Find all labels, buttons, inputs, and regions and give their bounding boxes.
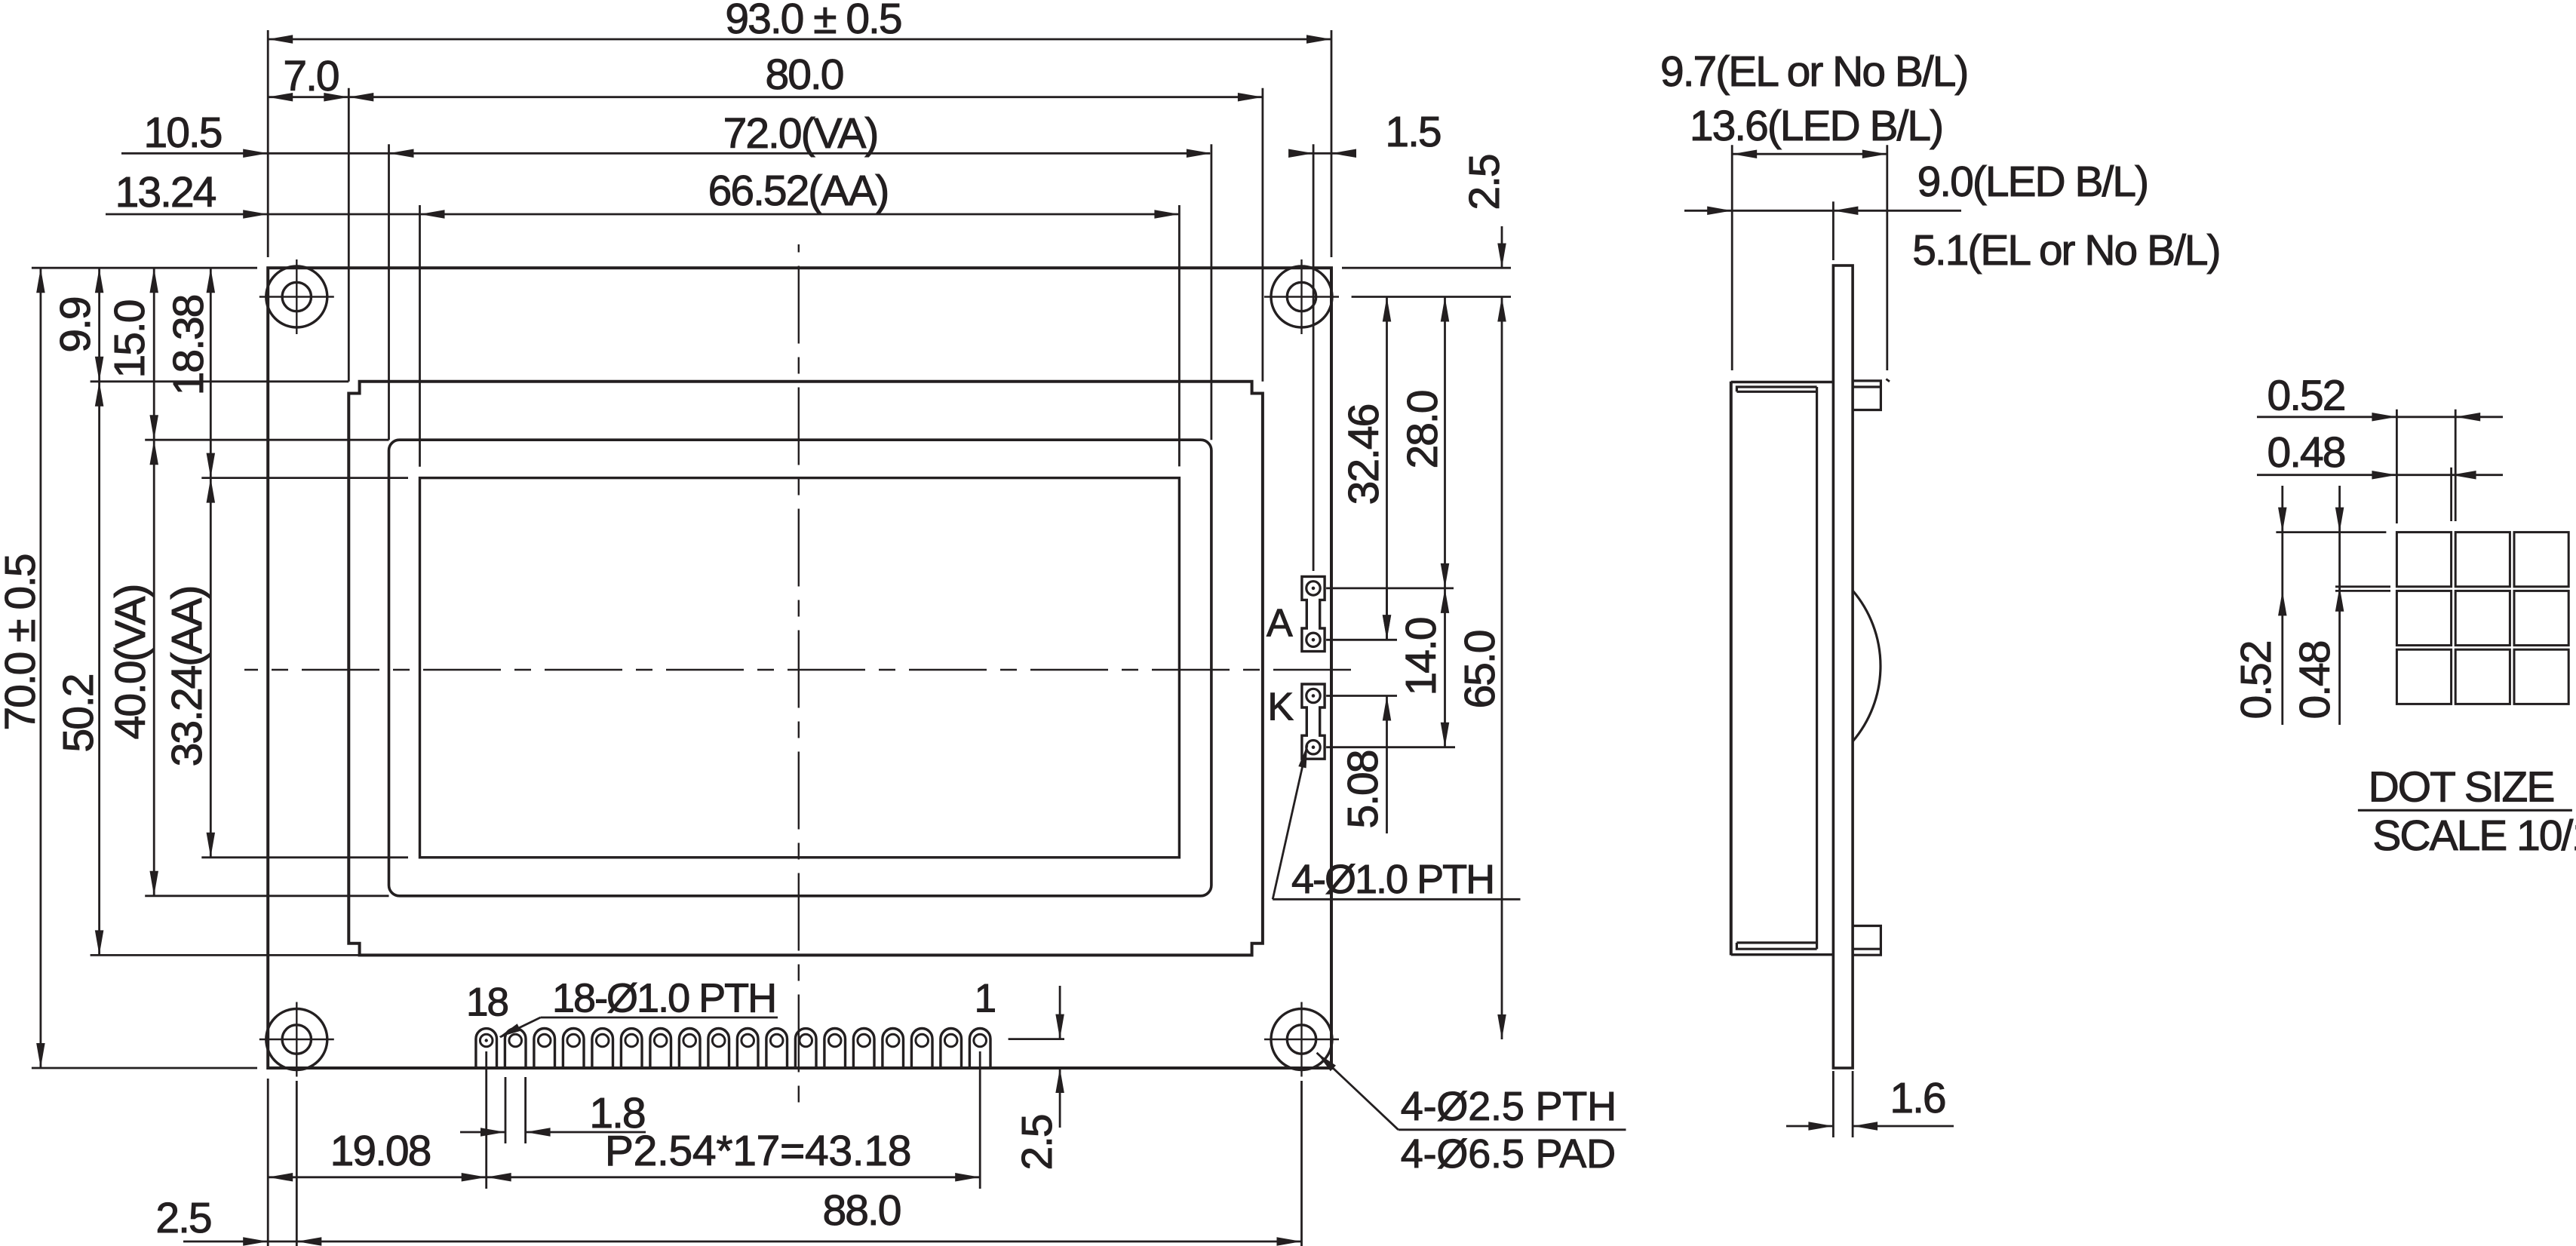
- svg-text:40.0(VA): 40.0(VA): [106, 585, 155, 740]
- svg-text:4-Ø1.0 PTH: 4-Ø1.0 PTH: [1291, 857, 1494, 902]
- svg-text:50.2: 50.2: [54, 675, 103, 753]
- svg-text:1.5: 1.5: [1385, 108, 1441, 156]
- svg-text:0.48: 0.48: [2267, 428, 2345, 477]
- svg-text:2.5: 2.5: [1460, 155, 1509, 210]
- svg-text:5.08: 5.08: [1339, 750, 1387, 828]
- svg-text:5.1(EL or No B/L): 5.1(EL or No B/L): [1912, 226, 2219, 275]
- svg-text:1.6: 1.6: [1890, 1074, 1945, 1122]
- svg-text:0.52: 0.52: [2267, 372, 2345, 420]
- svg-text:0.48: 0.48: [2291, 641, 2339, 719]
- svg-text:32.46: 32.46: [1340, 404, 1388, 505]
- svg-text:9.0(LED B/L): 9.0(LED B/L): [1917, 158, 2148, 206]
- svg-text:66.52(AA): 66.52(AA): [708, 167, 889, 215]
- svg-text:18-Ø1.0 PTH: 18-Ø1.0 PTH: [552, 976, 775, 1021]
- svg-text:A: A: [1267, 601, 1293, 645]
- svg-text:72.0(VA): 72.0(VA): [723, 109, 878, 158]
- svg-text:K: K: [1267, 686, 1294, 729]
- svg-text:70.0 ± 0.5: 70.0 ± 0.5: [0, 554, 45, 730]
- svg-text:18: 18: [466, 981, 508, 1025]
- svg-text:13.24: 13.24: [115, 168, 216, 216]
- svg-text:0.52: 0.52: [2232, 642, 2280, 720]
- svg-text:2.5: 2.5: [1013, 1115, 1061, 1171]
- svg-text:14.0: 14.0: [1397, 618, 1445, 695]
- svg-text:88.0: 88.0: [823, 1186, 901, 1235]
- svg-text:P2.54*17=43.18: P2.54*17=43.18: [605, 1127, 911, 1175]
- svg-text:80.0: 80.0: [766, 51, 843, 99]
- svg-text:15.0: 15.0: [106, 300, 154, 378]
- svg-text:93.0 ± 0.5: 93.0 ± 0.5: [725, 0, 901, 43]
- svg-text:33.24(AA): 33.24(AA): [163, 587, 211, 767]
- svg-text:13.6(LED B/L): 13.6(LED B/L): [1690, 102, 1942, 150]
- svg-text:7.0: 7.0: [283, 52, 339, 100]
- svg-text:9.9: 9.9: [51, 297, 100, 352]
- svg-text:9.7(EL or No B/L): 9.7(EL or No B/L): [1660, 48, 1967, 96]
- svg-text:SCALE 10/1: SCALE 10/1: [2372, 812, 2576, 860]
- svg-text:4-Ø6.5 PAD: 4-Ø6.5 PAD: [1401, 1131, 1616, 1177]
- svg-text:28.0: 28.0: [1399, 391, 1447, 468]
- svg-text:2.5: 2.5: [155, 1194, 211, 1242]
- svg-text:18.38: 18.38: [164, 295, 213, 395]
- svg-text:1: 1: [975, 977, 995, 1021]
- svg-text:19.08: 19.08: [330, 1127, 431, 1175]
- svg-text:DOT SIZE: DOT SIZE: [2369, 763, 2554, 812]
- svg-text:10.5: 10.5: [144, 109, 222, 157]
- svg-text:65.0: 65.0: [1456, 631, 1504, 708]
- svg-text:4-Ø2.5 PTH: 4-Ø2.5 PTH: [1401, 1084, 1617, 1129]
